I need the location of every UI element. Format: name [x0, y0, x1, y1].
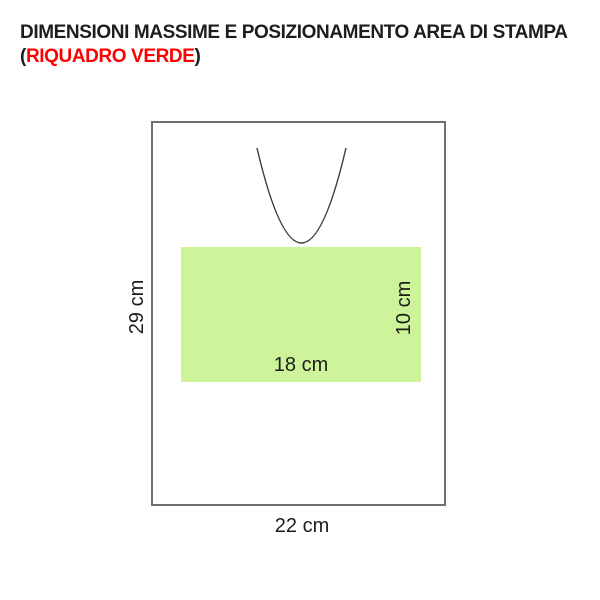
title-paren-close: )	[195, 46, 201, 67]
print-area-diagram: DIMENSIONI MASSIME E POSIZIONAMENTO AREA…	[0, 0, 600, 600]
label-print-height: 10 cm	[392, 268, 416, 348]
label-bag-height: 29 cm	[125, 267, 149, 347]
title-highlight: RIQUADRO VERDE	[26, 46, 195, 67]
label-bag-width: 22 cm	[257, 515, 347, 538]
title-line2: (RIQUADRO VERDE)	[20, 45, 568, 69]
page-title: DIMENSIONI MASSIME E POSIZIONAMENTO AREA…	[20, 21, 568, 69]
label-print-width: 18 cm	[256, 354, 346, 377]
title-line1: DIMENSIONI MASSIME E POSIZIONAMENTO AREA…	[20, 21, 568, 45]
